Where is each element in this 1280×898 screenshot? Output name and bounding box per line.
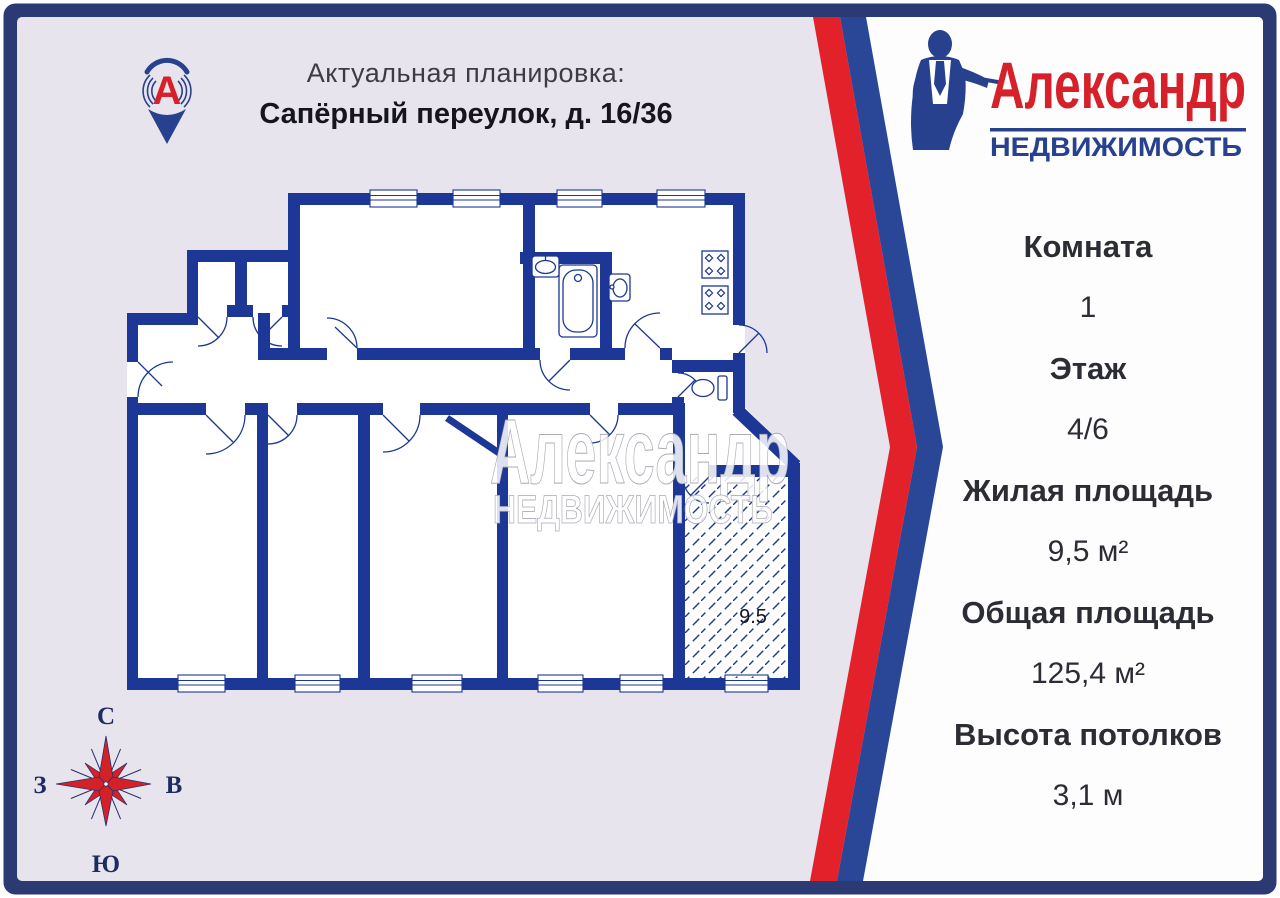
detail-label: Общая площадь — [905, 596, 1271, 630]
brand-name: Александр — [990, 48, 1246, 122]
detail-value: 125,4 м² — [905, 657, 1271, 691]
kitchen-sink-icon — [609, 274, 630, 301]
logo-rule — [990, 128, 1246, 132]
room-area-label: 9.5 — [739, 606, 767, 628]
flyer: А Актуальная планировка: Сапёрный переул… — [0, 0, 1280, 898]
page-title: Актуальная планировка: — [246, 58, 686, 89]
floor-plan: 9.5 Александр НЕДВИЖИМОСТЬ — [125, 185, 800, 695]
compass-label-north: С — [97, 703, 115, 730]
compass-label-west: З — [33, 772, 46, 799]
pin-letter: А — [153, 69, 182, 113]
detail-value: 1 — [905, 291, 1271, 325]
bathtub-icon — [559, 265, 597, 337]
compass-label-east: В — [166, 772, 183, 799]
compass-label-south: Ю — [92, 851, 120, 878]
detail-label: Этаж — [905, 352, 1271, 386]
location-pin-icon: А — [131, 54, 203, 146]
agency-logo: Александр НЕДВИЖИМОСТЬ — [883, 22, 1263, 174]
bathroom-sink-icon — [532, 256, 559, 277]
detail-value: 3,1 м — [905, 779, 1271, 813]
svg-text:НЕДВИЖИМОСТЬ: НЕДВИЖИМОСТЬ — [493, 488, 773, 532]
detail-label: Жилая площадь — [905, 474, 1271, 508]
compass-rose: С Ю З В — [25, 698, 190, 878]
stove-icon-2 — [702, 286, 728, 314]
detail-value: 9,5 м² — [905, 535, 1271, 569]
agent-man-icon — [911, 30, 1001, 150]
stove-icon — [702, 251, 728, 278]
address-title: Сапёрный переулок, д. 16/36 — [246, 98, 686, 131]
header-title-block: Актуальная планировка: Сапёрный переулок… — [246, 58, 686, 131]
watermark: Александр НЕДВИЖИМОСТЬ — [490, 401, 790, 532]
detail-value: 4/6 — [905, 413, 1271, 447]
brand-subtitle: НЕДВИЖИМОСТЬ — [990, 132, 1242, 162]
detail-label: Комната — [905, 230, 1271, 264]
details-list: Комната1Этаж4/6Жилая площадь9,5 м²Общая … — [905, 230, 1271, 840]
detail-label: Высота потолков — [905, 718, 1271, 752]
